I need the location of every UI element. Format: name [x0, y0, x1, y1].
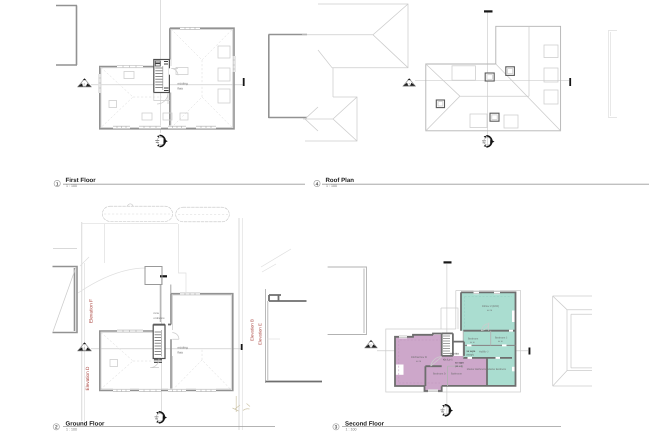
svg-text:1:7: 1:7	[407, 83, 410, 86]
svg-text:new: new	[154, 312, 160, 315]
svg-text:xx m: xx m	[470, 341, 475, 343]
svg-text:existing: existing	[178, 346, 188, 350]
svg-text:1:7: 1:7	[82, 83, 85, 86]
svg-text:(55sqf): (55sqf)	[467, 354, 474, 357]
svg-text:1: 1	[56, 181, 59, 187]
svg-text:xx m: xx m	[487, 309, 492, 311]
svg-text:Master Bedroom: Master Bedroom	[488, 368, 507, 371]
svg-text:4: 4	[316, 181, 319, 187]
svg-text:existing: existing	[178, 82, 188, 86]
svg-text:flats: flats	[178, 87, 184, 91]
svg-text:Kit /Liv 1: Kit /Liv 1	[443, 358, 453, 361]
svg-text:Elevation D: Elevation D	[85, 366, 90, 390]
svg-text:1:7: 1:7	[82, 347, 85, 350]
svg-text:Elevation F: Elevation F	[89, 299, 95, 323]
svg-text:Kitchen/Liv D: Kitchen/Liv D	[411, 356, 427, 359]
svg-text:1 : 100: 1 : 100	[66, 427, 77, 431]
svg-text:Bedroom 2: Bedroom 2	[495, 336, 508, 339]
svg-text:Bathroom: Bathroom	[451, 372, 462, 375]
svg-text:Elevation B: Elevation B	[250, 319, 255, 341]
svg-text:1 : 100: 1 : 100	[346, 427, 357, 431]
svg-text:xx m: xx m	[498, 340, 503, 342]
svg-text:xx m: xx m	[416, 360, 421, 362]
svg-text:xx sqm: xx sqm	[455, 362, 464, 365]
svg-text:(66 sqf): (66 sqf)	[455, 365, 463, 368]
svg-text:Master Bathroom: Master Bathroom	[467, 368, 486, 371]
svg-text:entrance: entrance	[154, 317, 166, 320]
svg-text:1:7: 1:7	[369, 344, 372, 347]
svg-text:3: 3	[335, 425, 338, 431]
svg-text:Elevation E: Elevation E	[258, 323, 263, 345]
svg-text:2: 2	[55, 425, 58, 431]
svg-text:W/D BA: W/D BA	[450, 353, 459, 356]
svg-text:xx sqm: xx sqm	[467, 350, 476, 353]
svg-text:Kit/Liv 2 (E02): Kit/Liv 2 (E02)	[482, 305, 499, 308]
svg-text:Hall/liv 2: Hall/liv 2	[479, 350, 489, 353]
svg-text:flats: flats	[178, 351, 184, 355]
svg-text:Bedroom D: Bedroom D	[433, 372, 446, 375]
svg-text:Bedroom: Bedroom	[468, 337, 478, 340]
